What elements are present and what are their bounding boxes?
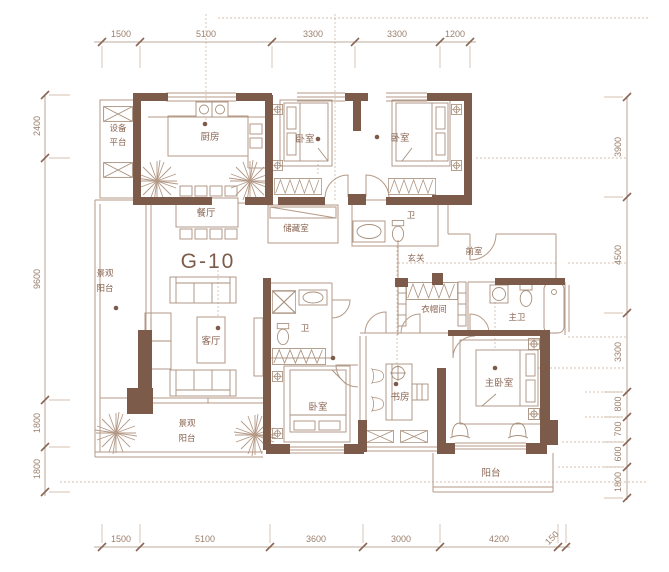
nightstand-icon: [272, 371, 282, 381]
room-label-kitchen: 厨房: [200, 131, 219, 143]
wardrobe-icon: [274, 178, 321, 194]
dim-right-1: 3900: [613, 137, 623, 157]
dim-right-3: 3300: [613, 342, 623, 362]
shower-icon: [272, 291, 295, 313]
dim-top-5: 1200: [445, 29, 465, 39]
floor-plan-page: 1500 5100 3300 3300 1200 1500 5100 3600 …: [0, 0, 669, 572]
room-label-cloakroom: 衣帽间: [421, 304, 447, 314]
louvre-icon: [104, 107, 133, 122]
dim-top-3: 3300: [303, 29, 323, 39]
window-box-icon: [367, 430, 394, 442]
dim-left-3: 1800: [32, 413, 42, 433]
nightstand-icon: [272, 428, 282, 438]
louvre-icon: [104, 163, 133, 178]
dim-right-7: 1800: [613, 472, 623, 492]
room-label-bath-a: 卫: [407, 210, 416, 220]
room-label-dining: 餐厅: [196, 207, 216, 219]
dim-left-1: 2400: [32, 116, 42, 136]
wall-marker-icon: [529, 409, 540, 420]
room-label-bath-b: 卫: [301, 323, 310, 333]
nightstand-icon: [272, 104, 282, 114]
dim-bottom-4: 3000: [391, 534, 411, 544]
room-label-equipment-2: 平台: [109, 137, 126, 147]
window-box-icon: [401, 430, 428, 442]
room-label-bedroom-c: 卧室: [308, 401, 327, 413]
dim-right-6: 600: [613, 446, 623, 461]
room-label-bedroom-b: 卧室: [390, 132, 409, 144]
chair-icon: [508, 423, 528, 438]
floor-plan-canvas: 1500 5100 3300 3300 1200 1500 5100 3600 …: [0, 0, 669, 572]
dim-top-2: 5100: [196, 29, 216, 39]
plant-icon: [95, 412, 137, 454]
room-label-balcony-right: 阳台: [481, 467, 500, 479]
room-label-study: 书房: [390, 391, 409, 403]
room-label-balcony-left-2: 阳台: [96, 283, 113, 293]
room-label-balcony-bottom-2: 阳台: [178, 433, 195, 443]
dim-left-4: 1800: [32, 459, 42, 479]
dim-bottom-5: 4200: [489, 534, 509, 544]
room-label-balcony-bottom-1: 景观: [178, 418, 196, 428]
room-label-master-bedroom: 主卧室: [485, 377, 514, 389]
room-label-equipment-1: 设备: [109, 123, 127, 133]
unit-label: G-10: [181, 250, 236, 273]
dim-right-2: 4500: [613, 245, 623, 265]
dim-right-4: 800: [613, 396, 623, 411]
chair-icon: [372, 368, 384, 384]
chair-icon: [372, 396, 384, 412]
doors: [325, 175, 496, 387]
dim-bottom-2: 5100: [195, 534, 215, 544]
chair-icon: [450, 423, 470, 438]
dim-left-2: 9600: [32, 269, 42, 289]
hanger-rail-icon: [406, 283, 457, 300]
dim-bottom-1: 1500: [111, 534, 131, 544]
room-label-bedroom-a: 卧室: [295, 133, 314, 145]
dim-top-1: 1500: [111, 29, 131, 39]
nightstand-icon: [451, 160, 461, 170]
wardrobe-icon: [388, 178, 435, 194]
wardrobe-icon: [272, 348, 325, 364]
toilet-icon: [520, 285, 532, 307]
plant-icon: [136, 160, 178, 202]
nightstand-icon: [451, 104, 461, 114]
dim-bottom-3: 3600: [306, 534, 326, 544]
toilet-icon: [392, 220, 404, 241]
nightstand-icon: [272, 160, 282, 170]
room-label-storage: 储藏室: [283, 223, 309, 233]
room-label-living: 客厅: [201, 335, 221, 347]
toilet-icon: [277, 323, 289, 344]
room-label-balcony-left-1: 景观: [96, 268, 114, 278]
room-label-hall: 玄关: [407, 253, 425, 263]
room-label-vestibule: 前室: [465, 246, 483, 256]
dimension-lines: [41, 38, 631, 551]
dim-right-5: 700: [613, 421, 623, 436]
dim-top-4: 3300: [387, 29, 407, 39]
room-label-master-bath: 主卫: [508, 312, 526, 322]
